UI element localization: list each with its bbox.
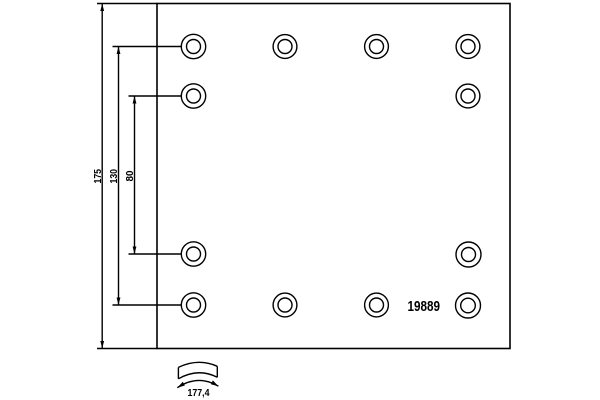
svg-text:80: 80 (125, 170, 136, 181)
svg-text:19889: 19889 (408, 298, 441, 315)
svg-text:177,4: 177,4 (188, 388, 210, 399)
svg-text:175: 175 (93, 169, 104, 184)
svg-text:130: 130 (109, 169, 120, 184)
